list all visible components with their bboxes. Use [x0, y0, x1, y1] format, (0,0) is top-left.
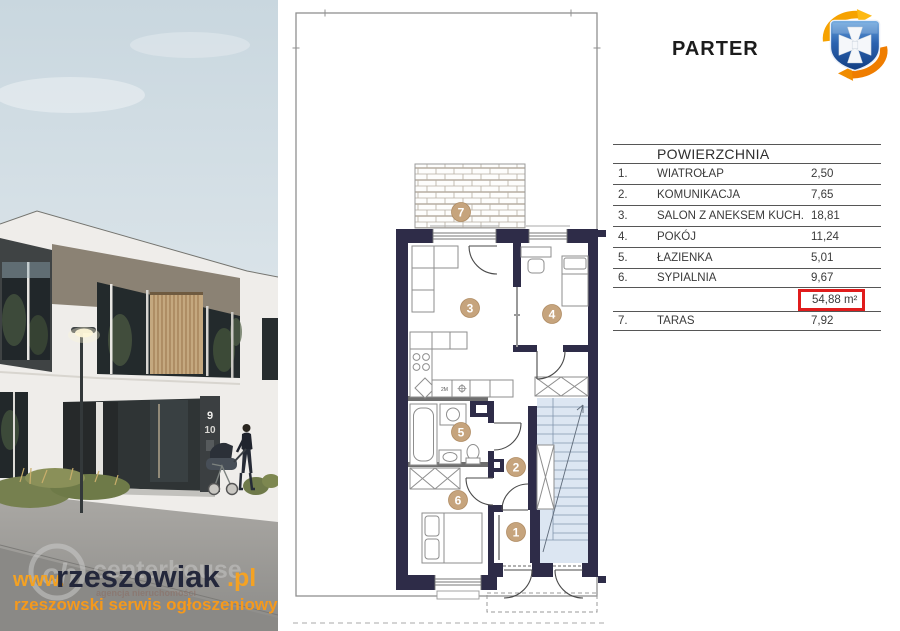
svg-text:4: 4: [549, 308, 556, 322]
table-row: 2. KOMUNIKACJA 7,65: [613, 184, 881, 205]
cloud: [0, 77, 145, 113]
table-row: 1. WIATROŁAP 2,50: [613, 163, 881, 184]
kitchen-note-label: 2M: [441, 387, 448, 393]
svg-text:7: 7: [458, 206, 465, 220]
table-header-row: POWIERZCHNIA: [613, 144, 881, 163]
house-number-9: 9: [207, 410, 213, 422]
svg-text:6: 6: [455, 494, 462, 508]
table-header: POWIERZCHNIA: [657, 146, 811, 162]
table-row: 4. POKÓJ 11,24: [613, 226, 881, 247]
table-row-terrace: 7. TARAS 7,92: [613, 311, 881, 331]
rzeszowiak-crest-logo: [821, 9, 889, 81]
watermark-tagline: rzeszowski serwis ogłoszeniowy: [14, 595, 278, 614]
watermark-name: rzeszowiak: [56, 559, 220, 594]
table-total-row: 54,88 m²: [613, 287, 881, 311]
badge-room-1: 1: [507, 523, 526, 542]
listing-image: 9 10: [0, 0, 900, 631]
table-row: 5. ŁAZIENKA 5,01: [613, 247, 881, 268]
badge-room-5: 5: [452, 423, 471, 442]
watermark-tld: .pl: [227, 564, 256, 592]
terrace: [415, 164, 525, 228]
svg-text:1: 1: [513, 526, 520, 540]
house-number-10: 10: [204, 425, 216, 436]
cloud: [130, 32, 250, 58]
building-photo: 9 10: [0, 0, 278, 631]
svg-text:2: 2: [513, 461, 520, 475]
area-table: POWIERZCHNIA 1. WIATROŁAP 2,50 2. KOMUNI…: [613, 144, 881, 331]
badge-room-3: 3: [461, 299, 480, 318]
badge-room-2: 2: [507, 458, 526, 477]
svg-text:3: 3: [467, 302, 474, 316]
floor-title: PARTER: [672, 38, 759, 61]
wood-slats: [150, 292, 203, 374]
svg-text:5: 5: [458, 426, 465, 440]
table-row: 6. SYPIALNIA 9,67: [613, 268, 881, 287]
badge-room-7: 7: [452, 203, 471, 222]
badge-room-6: 6: [449, 491, 468, 510]
floor-plan: 2M 7 3 4 5 2 6 1: [278, 0, 612, 631]
badge-room-4: 4: [543, 305, 562, 324]
table-row: 3. SALON Z ANEKSEM KUCH. 18,81: [613, 205, 881, 226]
total-area-highlight: 54,88 m²: [798, 289, 865, 311]
